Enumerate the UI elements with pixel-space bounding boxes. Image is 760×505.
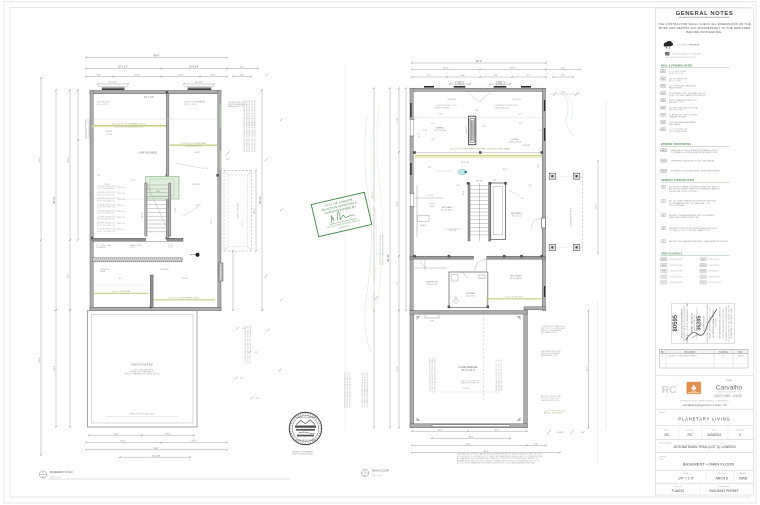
svg-text:STEP: STEP (430, 321, 434, 323)
svg-text:AREA SCHEDULE: AREA SCHEDULE (661, 253, 683, 256)
svg-text:10'-6": 10'-6" (165, 433, 171, 435)
svg-text:S-01 2x10: S-01 2x10 (118, 229, 125, 231)
svg-text:REQUIRED UNLESS DESIGN IS EXEM: REQUIRED UNLESS DESIGN IS EXEMPT (684, 304, 686, 341)
svg-text:W1: W1 (662, 71, 665, 73)
svg-text:ISSUED FOR BUILDING PERMIT: ISSUED FOR BUILDING PERMIT (668, 356, 698, 358)
svg-text:SEE ELEV. FOR STYLE: SEE ELEV. FOR STYLE (461, 382, 480, 384)
svg-text:03/08: 03/08 (739, 477, 747, 481)
svg-text:BEFORE PROCEEDING.: BEFORE PROCEEDING. (686, 30, 722, 34)
svg-text:BASEMENT + MAIN FLOOR: BASEMENT + MAIN FLOOR (683, 461, 734, 466)
svg-text:W/ 3/4" T&G SUBFLOOR: W/ 3/4" T&G SUBFLOOR (97, 207, 116, 209)
svg-text:8'-4": 8'-4" (461, 75, 465, 77)
svg-text:SEE DETAIL A-501: SEE DETAIL A-501 (495, 106, 510, 109)
svg-text:UNFINISHED: UNFINISHED (139, 151, 158, 155)
svg-text:Seal for validity of design: Seal for validity of design (292, 453, 313, 456)
svg-text:3'-6": 3'-6" (493, 180, 497, 182)
svg-text:4'-0": 4'-0" (242, 328, 246, 330)
svg-text:2x10 SPF JOISTS @ 16" O.C.: 2x10 SPF JOISTS @ 16" O.C. (97, 186, 120, 188)
svg-text:UNLESS NOTED OTH.: UNLESS NOTED OTH. (541, 400, 560, 402)
svg-text:8'-10": 8'-10" (194, 152, 199, 154)
svg-text:(2) 11 7/8" LVL DROP: (2) 11 7/8" LVL DROP (505, 297, 523, 299)
svg-text:Checked: Checked (686, 429, 693, 431)
svg-text:ASSEMBLIES (TYP.): ASSEMBLIES (TYP.) (541, 354, 558, 357)
svg-text:S-01 2x10: S-01 2x10 (118, 199, 125, 201)
svg-text:Project address:: Project address: (659, 442, 672, 445)
svg-text:(2) 11 7/8" LVL FLUSH BEAM W/: (2) 11 7/8" LVL FLUSH BEAM W/ HANGERS - … (450, 148, 511, 151)
svg-text:122.4 SQ FT: 122.4 SQ FT (709, 265, 721, 267)
svg-text:ARCH D: ARCH D (716, 477, 729, 481)
svg-text:12'-2": 12'-2" (178, 75, 184, 77)
svg-text:36'-2": 36'-2" (476, 59, 483, 63)
svg-text:SEE LEGEND SHEET A-001 (TY: SEE LEGEND SHEET A-001 (TYP.) (666, 56, 696, 59)
svg-text:5'-4": 5'-4" (211, 75, 216, 77)
svg-text:COLD CELLAR: COLD CELLAR (237, 203, 240, 219)
svg-text:TEMPERED GLAZING AT DOORS / WE: TEMPERED GLAZING AT DOORS / WET AREAS. (671, 159, 715, 162)
svg-text:8'-0" x 12'-4": 8'-0" x 12'-4" (97, 104, 109, 106)
svg-text:19'-4 1/2": 19'-4 1/2" (189, 66, 199, 69)
svg-text:W/ TOP MOUNT HANGERS (TYP.): W/ TOP MOUNT HANGERS (TYP.) (115, 126, 144, 129)
svg-text:5: 5 (663, 241, 664, 243)
svg-text:19'-5": 19'-5" (191, 441, 197, 443)
svg-text:BLDG: BLDG (701, 282, 706, 284)
svg-text:UNLESS DESIGN EXEMPT - C 3.2.4: UNLESS DESIGN EXEMPT - C 3.2.4 (710, 308, 712, 339)
svg-text:BASEMENT PLAN: BASEMENT PLAN (50, 470, 73, 474)
svg-text:PROVINCE OF ONTARIO: PROVINCE OF ONTARIO (294, 439, 318, 442)
svg-text:3: 3 (663, 215, 664, 217)
svg-text:AREA: AREA (100, 270, 106, 273)
svg-text:W5: W5 (662, 100, 665, 102)
svg-text:STORAGE: STORAGE (160, 268, 170, 271)
svg-text:A2: A2 (364, 474, 366, 477)
svg-text:7'-10": 7'-10" (175, 207, 177, 212)
svg-text:20'-0 x 20'-2: 20'-0 x 20'-2 (461, 369, 475, 372)
svg-text:3'-0": 3'-0" (475, 110, 479, 112)
svg-text:4'-6 x 5'-0: 4'-6 x 5'-0 (466, 295, 476, 297)
svg-text:INT. FINISH (TYP.): INT. FINISH (TYP.) (541, 332, 556, 334)
svg-text:6'-8 x 5'-4: 6'-8 x 5'-4 (428, 284, 438, 286)
svg-text:24'-8": 24'-8" (39, 357, 41, 362)
svg-text:9'-2": 9'-2" (527, 75, 531, 77)
svg-text:W8: W8 (662, 122, 665, 124)
svg-text:JUN/24: JUN/24 (737, 356, 743, 358)
svg-text:UP 14R: UP 14R (476, 181, 483, 183)
svg-text:80595: 80595 (673, 314, 679, 331)
svg-text:COVERED PORCH: COVERED PORCH (570, 207, 572, 228)
svg-text:5'-0": 5'-0" (431, 123, 435, 125)
svg-text:16'-2": 16'-2" (587, 366, 589, 371)
svg-text:1/4" = 1'-0": 1/4" = 1'-0" (678, 477, 695, 481)
svg-text:3 PC R/I: 3 PC R/I (202, 168, 209, 170)
svg-text:556.6 SQ FT: 556.6 SQ FT (709, 276, 721, 278)
svg-text:SLOPE: SLOPE (463, 388, 470, 390)
svg-text:19'-1 1/2": 19'-1 1/2" (118, 66, 128, 69)
svg-text:ON 12" SONOTUBE: ON 12" SONOTUBE (669, 131, 687, 133)
svg-text:BCIN: BCIN FIRM BCIN (703, 315, 705, 330)
svg-text:16" O.C. TYP.: 16" O.C. TYP. (669, 80, 681, 82)
svg-text:5068: 5068 (458, 83, 462, 85)
svg-text:16'-0": 16'-0" (468, 436, 473, 438)
svg-text:8'-4": 8'-4" (494, 75, 498, 77)
svg-text:S-01 2x10: S-01 2x10 (118, 223, 125, 225)
svg-text:1,471.0 SQ FT: 1,471.0 SQ FT (709, 282, 723, 284)
svg-text:WD3: WD3 (662, 171, 666, 173)
svg-text:(2) 9 1/2" LVL FLUSH BEAM (U.N: (2) 9 1/2" LVL FLUSH BEAM (U.N.O.) (112, 123, 146, 126)
svg-text:RC: RC (688, 433, 693, 437)
svg-text:EXTERIOR DOORS INSULATED, WEAT: EXTERIOR DOORS INSULATED, WEATHERSTRIPPE… (671, 170, 721, 173)
svg-text:RAFAEL CARVALHO: RAFAEL CARVALHO (690, 313, 693, 334)
svg-text:WIRED AND INTERCONNECTED.: WIRED AND INTERCONNECTED. (669, 216, 700, 219)
svg-text:1: 1 (663, 187, 664, 189)
svg-text:38'-6": 38'-6" (153, 54, 160, 58)
svg-text:8'-10": 8'-10" (182, 278, 187, 280)
svg-text:10'-2": 10'-2" (437, 429, 442, 431)
svg-text:WORK AND REPORT ANY DISCREPANC: WORK AND REPORT ANY DISCREPANCY TO THE D… (659, 26, 751, 30)
svg-text:10'-4": 10'-4" (463, 190, 465, 195)
svg-text:W6: W6 (662, 107, 665, 109)
svg-text:16'-1": 16'-1" (54, 365, 56, 371)
svg-text:@ 16" O.C. TYP.: @ 16" O.C. TYP. (669, 73, 684, 75)
svg-text:4: 4 (663, 228, 664, 230)
svg-text:14'-2": 14'-2" (113, 433, 119, 435)
svg-text:2: 2 (663, 201, 664, 203)
svg-text:RC: RC (662, 384, 678, 396)
svg-text:ABOVE - SEE DETAIL: ABOVE - SEE DETAIL (544, 412, 562, 415)
svg-text:9'-2": 9'-2" (68, 274, 70, 279)
svg-text:Issued by: Issued by (719, 351, 729, 353)
svg-text:5'-1": 5'-1" (419, 133, 421, 137)
svg-text:12'-1 1/2": 12'-1 1/2" (461, 162, 470, 164)
svg-text:13'-6 x 15'-2: 13'-6 x 15'-2 (509, 142, 522, 144)
svg-text:1/2" DIA. @ 7'-10" O.C. W/ SIL: 1/2" DIA. @ 7'-10" O.C. W/ SILL GASKET. … (669, 229, 710, 232)
svg-text:2-SIDED FP: 2-SIDED FP (466, 126, 468, 135)
svg-text:(647) 985 - 0405: (647) 985 - 0405 (714, 394, 741, 398)
svg-text:AIR GAP 1" TYP.: AIR GAP 1" TYP. (669, 101, 684, 104)
svg-text:ON GRADE: ON GRADE (96, 246, 106, 249)
svg-text:WD1: WD1 (662, 150, 666, 152)
svg-text:1,024.6 SQ FT: 1,024.6 SQ FT (670, 259, 684, 261)
svg-text:8'-1 1/2": 8'-1 1/2" (195, 82, 203, 84)
svg-text:No.: No. (661, 351, 665, 353)
svg-text:2x10 SPF JOISTS @ 16" O.C.: 2x10 SPF JOISTS @ 16" O.C. (97, 229, 120, 231)
svg-text:MAIN: MAIN (662, 264, 667, 267)
svg-text:11'-2": 11'-2" (596, 204, 598, 209)
svg-text:W4: W4 (662, 93, 665, 95)
svg-text:2,155.0 SQ FT: 2,155.0 SQ FT (670, 276, 684, 278)
svg-text:WINDOW / DOOR NOTES: WINDOW / DOOR NOTES (661, 143, 691, 146)
svg-text:(3) 9 1/2" LVL DROP BEAM (U.N.: (3) 9 1/2" LVL DROP BEAM (U.N.O.) (169, 297, 200, 300)
svg-text:GENERAL NOTES: GENERAL NOTES (676, 11, 734, 17)
svg-text:Date: Date (738, 350, 742, 353)
svg-text:U.N.O. ON PLAN.: U.N.O. ON PLAN. (669, 204, 685, 207)
svg-text:S-01 2x10: S-01 2x10 (118, 211, 125, 213)
svg-text:W/ 3/4" T&G SUBFLOOR: W/ 3/4" T&G SUBFLOOR (97, 200, 116, 202)
svg-text:casal: casal (726, 380, 732, 382)
svg-text:5'-8": 5'-8" (226, 159, 230, 161)
svg-text:10'-2" x 12'-4": 10'-2" x 12'-4" (184, 104, 197, 106)
svg-text:14'-10": 14'-10" (142, 212, 144, 218)
svg-text:5'-2": 5'-2" (97, 175, 101, 177)
svg-text:2678 BATEMAN TRAIL (LOT 3), LO: 2678 BATEMAN TRAIL (LOT 3), LONDON (673, 445, 736, 449)
svg-text:2'-6": 2'-6" (456, 185, 460, 187)
svg-text:10'-0": 10'-0" (494, 429, 499, 431)
svg-text:4'-11": 4'-11" (131, 180, 136, 182)
svg-text:Project status: Project status (719, 485, 730, 488)
svg-text:11'-1 x 14'-6: 11'-1 x 14'-6 (510, 278, 522, 280)
svg-text:W/ 3/4" T&G SUBFLOOR: W/ 3/4" T&G SUBFLOOR (97, 213, 116, 215)
svg-text:2x10 SPF JOISTS @ 16" O.C.: 2x10 SPF JOISTS @ 16" O.C. (97, 198, 120, 200)
svg-text:8'-10 1/2": 8'-10 1/2" (449, 230, 457, 232)
svg-text:2'-6": 2'-6" (254, 352, 258, 354)
svg-text:6'-0": 6'-0" (503, 169, 507, 171)
svg-text:18'-1": 18'-1" (443, 68, 449, 70)
svg-text:3'-4": 3'-4" (534, 444, 538, 446)
svg-text:1/4" = 1'-0": 1/4" = 1'-0" (372, 475, 383, 477)
svg-text:THE CONTRACTOR SHALL CHECK ALL: THE CONTRACTOR SHALL CHECK ALL DIMENSION… (658, 22, 751, 26)
svg-text:name:: name: (659, 459, 664, 461)
svg-text:38'-6": 38'-6" (153, 448, 159, 450)
svg-text:T&G: T&G (518, 114, 522, 116)
svg-text:P-A6221: P-A6221 (672, 489, 685, 493)
svg-text:W2: W2 (662, 78, 665, 80)
svg-text:MAIN FLOOR: MAIN FLOOR (372, 469, 389, 473)
svg-text:DENOTES SMOKE / CO ALARM: DENOTES SMOKE / CO ALARM (672, 53, 702, 56)
svg-text:2678 BATEMAN TRAIL LONDON ON: 2678 BATEMAN TRAIL LONDON ON (718, 307, 721, 339)
svg-text:36'-11": 36'-11" (52, 196, 56, 204)
svg-text:26'-3 3/8": 26'-3 3/8" (152, 455, 161, 457)
svg-text:W/ HANGERS (TYP.): W/ HANGERS (TYP.) (185, 145, 202, 148)
svg-text:GARAGE / HOUSE: GARAGE / HOUSE (669, 116, 687, 119)
svg-text:Revision: Revision (737, 429, 744, 431)
svg-text:T&G: T&G (439, 114, 443, 116)
svg-text:BUILDING PERMIT: BUILDING PERMIT (710, 489, 739, 493)
svg-text:W/ 3/4" T&G SUBFLOOR: W/ 3/4" T&G SUBFLOOR (97, 231, 116, 233)
svg-text:Drawn: Drawn (664, 429, 669, 431)
svg-text:36'-2": 36'-2" (483, 451, 488, 453)
svg-text:W/ 3/4" T&G SUBFLOOR: W/ 3/4" T&G SUBFLOOR (97, 219, 116, 221)
svg-text:LUSSIER ENGINEERS: LUSSIER ENGINEERS (295, 417, 317, 419)
svg-text:12'-2 x 13'-6: 12'-2 x 13'-6 (434, 130, 447, 132)
svg-text:3'-1": 3'-1" (538, 130, 542, 132)
svg-text:21'-4": 21'-4" (68, 157, 70, 163)
svg-text:4,306.0 SQ FT: 4,306.0 SQ FT (670, 282, 684, 284)
svg-text:QUALIFICATION INFORMATION: QUALIFICATION INFORMATION (680, 308, 683, 338)
svg-text:W/ 3/4" T&G SUBFLOOR: W/ 3/4" T&G SUBFLOOR (97, 194, 116, 196)
svg-text:GENERAL CONSTRUCTION: GENERAL CONSTRUCTION (661, 179, 694, 182)
svg-text:S-01 2x10: S-01 2x10 (118, 205, 125, 207)
svg-text:ALL LVL / STEEL BEAM SIZES PER: ALL LVL / STEEL BEAM SIZES PER SUPPLIER … (457, 462, 535, 465)
svg-text:CONT. FOOTING. DAMP-PROOFING E: CONT. FOOTING. DAMP-PROOFING EXT. (669, 94, 707, 97)
svg-text:SMOOTH FINISH: SMOOTH FINISH (435, 107, 450, 109)
svg-text:7'-6": 7'-6" (431, 139, 435, 141)
svg-text:2x10 SPF JOISTS @ 16" O.C.: 2x10 SPF JOISTS @ 16" O.C. (97, 217, 120, 219)
svg-text:Project:: Project: (659, 411, 666, 414)
svg-text:PLANETARY LIVING: PLANETARY LIVING (678, 416, 730, 421)
svg-text:7 1/2": 7 1/2" (168, 247, 173, 249)
svg-text:2'-8": 2'-8" (240, 75, 245, 77)
svg-text:(2) 9 1/2" LVL FLUSH: (2) 9 1/2" LVL FLUSH (112, 291, 131, 293)
svg-text:18'-1": 18'-1" (510, 68, 516, 70)
svg-text:19'-1": 19'-1" (120, 441, 126, 443)
svg-text:9'-6 1/2": 9'-6 1/2" (105, 131, 113, 133)
svg-text:W3: W3 (662, 86, 665, 88)
svg-text:S-01 2x10: S-01 2x10 (118, 193, 125, 195)
svg-text:CLOUD MARK: CLOUD MARK (674, 43, 688, 46)
svg-text:6'-1": 6'-1" (482, 126, 486, 128)
svg-text:REGISTRATION INFORMATION REQUI: REGISTRATION INFORMATION REQUIRED (706, 303, 709, 342)
svg-text:0: 0 (739, 433, 741, 437)
svg-text:4'-6": 4'-6" (581, 432, 585, 434)
svg-text:1: 1 (662, 356, 663, 358)
svg-text:6'-2": 6'-2" (240, 378, 244, 380)
svg-text:GAR: GAR (701, 258, 706, 261)
svg-text:PIT: PIT (196, 207, 199, 209)
svg-text:Date: Date (712, 428, 716, 431)
svg-text:W7: W7 (662, 115, 665, 117)
svg-text:21'-0": 21'-0" (465, 444, 470, 446)
svg-text:Description: Description (685, 350, 696, 353)
svg-text:4'-5": 4'-5" (428, 167, 432, 169)
svg-text:12'-2 x 13'-0: 12'-2 x 13'-0 (441, 210, 454, 212)
svg-text:3: 3 (676, 383, 679, 388)
svg-text:Scale: Scale (684, 473, 689, 475)
svg-text:1,118.2 SQ FT: 1,118.2 SQ FT (670, 271, 684, 273)
svg-text:PORCH: PORCH (700, 265, 707, 267)
svg-text:434.2 SQ FT: 434.2 SQ FT (709, 259, 721, 261)
svg-text:BACKFILL W/ GRANULAR MATERIAL.: BACKFILL W/ GRANULAR MATERIAL. GRADE AWA… (669, 240, 729, 243)
svg-text:RC: RC (665, 433, 670, 437)
svg-text:2x10 SPF JOISTS @ 16" O.C.: 2x10 SPF JOISTS @ 16" O.C. (97, 210, 120, 212)
svg-text:REMOVE ALL ORGANIC SOIL: REMOVE ALL ORGANIC SOIL (130, 413, 155, 416)
svg-text:7'-6": 7'-6" (397, 281, 399, 285)
svg-text:SIGNATURE OF DESIGNER - DATE: SIGNATURE OF DESIGNER - DATE (730, 307, 733, 339)
svg-text:Carvalho: Carvalho (716, 384, 743, 391)
svg-text:8'-1": 8'-1" (97, 75, 102, 77)
svg-text:8'-1 1/2": 8'-1 1/2" (109, 82, 117, 84)
svg-text:rcarvalhodesign@gmail.com | Lo: rcarvalhodesign@gmail.com | London - ON (682, 404, 726, 407)
svg-text:Sheet N.: Sheet N. (740, 472, 747, 475)
svg-text:8'-10": 8'-10" (397, 117, 399, 122)
svg-text:1,036.8 SQ FT: 1,036.8 SQ FT (670, 265, 684, 267)
svg-text:2'-8": 2'-8" (561, 75, 565, 77)
svg-text:WALL & FRAMING NOTES: WALL & FRAMING NOTES (661, 65, 693, 68)
svg-text:DECK: DECK (701, 271, 707, 273)
svg-text:4'-2": 4'-2" (519, 123, 523, 125)
svg-text:(2) 9 1/2" LVL FLUSH BEAM: (2) 9 1/2" LVL FLUSH BEAM (181, 142, 207, 145)
svg-text:W/ 3/4" T&G SUBFLOOR: W/ 3/4" T&G SUBFLOOR (97, 188, 116, 190)
svg-text:FIRM NAME: FIRM NAME (715, 317, 718, 328)
svg-text:PAINT FINISH: PAINT FINISH (669, 87, 682, 90)
svg-text:36'-3 7/8": 36'-3 7/8" (144, 97, 154, 99)
svg-text:18'-4 3/8": 18'-4 3/8" (191, 184, 200, 186)
svg-text:= REVISION: = REVISION (688, 44, 700, 46)
svg-text:S-01 2x10: S-01 2x10 (118, 187, 125, 189)
svg-text:10'-1": 10'-1" (242, 220, 244, 225)
svg-text:3'-8": 3'-8" (256, 398, 260, 400)
svg-text:A2: A2 (42, 476, 44, 479)
svg-text:WARM SIDE (TYP.): WARM SIDE (TYP.) (228, 105, 244, 108)
svg-text:2x10 SPF JOISTS @ 16" O.C.: 2x10 SPF JOISTS @ 16" O.C. (97, 223, 120, 225)
svg-text:21'-4": 21'-4" (39, 157, 41, 162)
svg-text:4'-2": 4'-2" (562, 92, 566, 94)
svg-text:11'-2": 11'-2" (211, 219, 213, 224)
svg-text:46'-10": 46'-10" (386, 254, 390, 262)
svg-text:16'-2": 16'-2" (397, 366, 399, 371)
svg-text:6'-2": 6'-2" (119, 278, 123, 280)
svg-text:6'-0 x 7'-2: 6'-0 x 7'-2 (512, 215, 522, 217)
svg-text:150 kPa MIN. PRIOR TO POUR.: 150 kPa MIN. PRIOR TO POUR. (669, 191, 698, 193)
svg-text:9'-2": 9'-2" (427, 75, 431, 77)
svg-text:SEE DETAIL: SEE DETAIL (669, 123, 681, 126)
svg-text:4'-2": 4'-2" (240, 67, 245, 69)
svg-text:MUNICIPAL ADDRESS OF PROJECT: MUNICIPAL ADDRESS OF PROJECT (722, 307, 725, 338)
svg-text:1'-4 3/8": 1'-4 3/8" (557, 432, 564, 434)
svg-text:10'-6": 10'-6" (134, 75, 140, 77)
svg-text:11'-6": 11'-6" (254, 208, 256, 213)
svg-text:2x10 SPF JOISTS @ 16" O.C.: 2x10 SPF JOISTS @ 16" O.C. (97, 192, 120, 194)
svg-text:16'-4 1/2": 16'-4 1/2" (447, 99, 456, 101)
svg-text:JUN2024: JUN2024 (707, 433, 721, 437)
svg-text:16'-1 1/2": 16'-1 1/2" (512, 99, 521, 101)
svg-text:Project N.: Project N. (674, 485, 682, 488)
svg-text:1/4" = 1'-0": 1/4" = 1'-0" (50, 476, 61, 478)
svg-text:(MIN. 6" CLEARANCE TO U/S OF J: (MIN. 6" CLEARANCE TO U/S OF JOISTS) (125, 373, 160, 376)
svg-text:96.0 SQ FT: 96.0 SQ FT (709, 271, 720, 273)
svg-text:7'-2": 7'-2" (538, 164, 540, 168)
svg-text:Sheet size: Sheet size (718, 472, 726, 475)
svg-text:(TYP.): (TYP.) (130, 247, 135, 249)
svg-text:POLY V.B. TYP.: POLY V.B. TYP. (669, 109, 683, 111)
svg-text:11'-8 1/2": 11'-8 1/2" (523, 145, 531, 147)
svg-text:2'-10": 2'-10" (423, 130, 428, 132)
svg-text:W9: W9 (662, 129, 665, 131)
svg-text:W/ 3/4" T&G SUBFLOOR: W/ 3/4" T&G SUBFLOOR (97, 225, 116, 227)
svg-text:5068: 5068 (498, 83, 502, 85)
svg-text:CLG HT: CLG HT (106, 134, 112, 136)
svg-text:2x10 SPF JOISTS @ 16" O.C.: 2x10 SPF JOISTS @ 16" O.C. (97, 204, 120, 206)
svg-text:S-01 2x10: S-01 2x10 (118, 217, 125, 219)
svg-text:5'-8": 5'-8" (528, 185, 532, 187)
svg-text:36'-11": 36'-11" (258, 196, 262, 204)
svg-text:TO FRAMING. EGRESS WINDOWS AT: TO FRAMING. EGRESS WINDOWS AT BEDROOMS. (671, 151, 718, 154)
svg-text:UNEXCAVATED: UNEXCAVATED (131, 363, 153, 367)
svg-text:14'-4": 14'-4" (397, 201, 399, 206)
svg-text:ISLAND: ISLAND (420, 224, 427, 227)
svg-text:WD2: WD2 (662, 160, 666, 162)
svg-text:4'-6": 4'-6" (561, 68, 565, 70)
svg-text:8'-1 1/8": 8'-1 1/8" (427, 195, 434, 197)
